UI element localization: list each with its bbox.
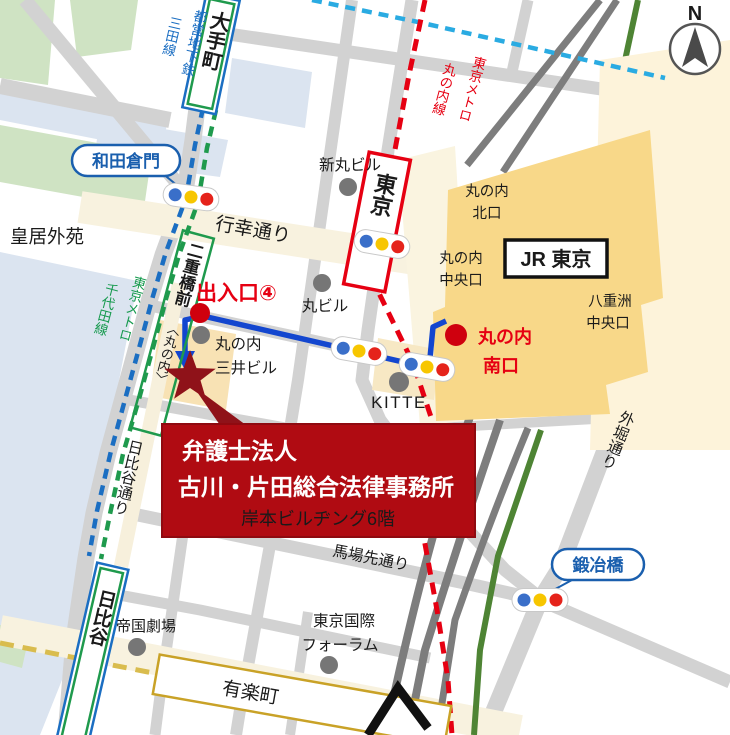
- office-name-line2: 古川・片田総合法律事務所: [178, 474, 454, 500]
- minami-exit-line1: 丸の内: [477, 326, 532, 347]
- park-block: [70, 0, 138, 57]
- teigeki-label: 帝国劇場: [116, 618, 176, 635]
- shinmaru-label: 新丸ビル: [319, 156, 381, 174]
- moat-block: [225, 58, 312, 128]
- jr-tokyo-label: JR 東京: [520, 247, 591, 271]
- kajibashi-label: 鍛冶橋: [573, 555, 625, 575]
- office-building-floor: 岸本ビルヂング6階: [241, 509, 395, 529]
- kitte-building-dot: [389, 372, 409, 392]
- wadakuramon-label: 和田倉門: [92, 151, 160, 171]
- minami-exit-dot: [445, 324, 467, 346]
- traffic-signal: [512, 589, 568, 612]
- minami-exit-line2: 南口: [483, 355, 519, 376]
- compass: N: [670, 3, 720, 74]
- access-map: 大手町 東京 JR 東京 二重橋前 〈丸の内〉 日比谷 有楽町 和田倉門 鍛冶橋: [0, 0, 730, 735]
- chuo-exit-line1: 丸の内: [439, 250, 483, 267]
- kitte-label: KITTE: [371, 393, 427, 412]
- forum-label-line2: フォーラム: [301, 637, 378, 654]
- exit4-dot: [190, 303, 210, 323]
- mita-name-label: 三田線: [159, 15, 184, 58]
- marubiru-label: 丸ビル: [302, 297, 349, 315]
- mitsui-label-line1: 丸の内: [215, 335, 262, 353]
- forum-label-line1: 東京国際: [313, 612, 376, 630]
- yaesu-exit-line1: 八重洲: [588, 293, 632, 310]
- yaesu-exit-line2: 中央口: [586, 315, 630, 332]
- shinmaru-building-dot: [339, 178, 357, 196]
- marubiru-building-dot: [313, 274, 331, 292]
- mitsui-building-dot: [192, 326, 210, 344]
- exit4-label: 出入口④: [196, 282, 277, 305]
- kita-exit-line1: 丸の内: [465, 183, 509, 200]
- side-street: [512, 0, 528, 72]
- office-name-line1: 弁護士法人: [182, 438, 298, 464]
- chuo-exit-line2: 中央口: [439, 272, 483, 289]
- kokyo-gaien-label: 皇居外苑: [10, 226, 84, 247]
- mitsui-label-line2: 三井ビル: [215, 359, 277, 377]
- forum-building-dot: [320, 656, 338, 674]
- kajibashi-street: [540, 600, 730, 682]
- kajibashi-gate: 鍛冶橋: [548, 549, 644, 593]
- kita-exit-line2: 北口: [473, 205, 502, 222]
- compass-north-label: N: [688, 3, 702, 25]
- teigeki-building-dot: [128, 638, 146, 656]
